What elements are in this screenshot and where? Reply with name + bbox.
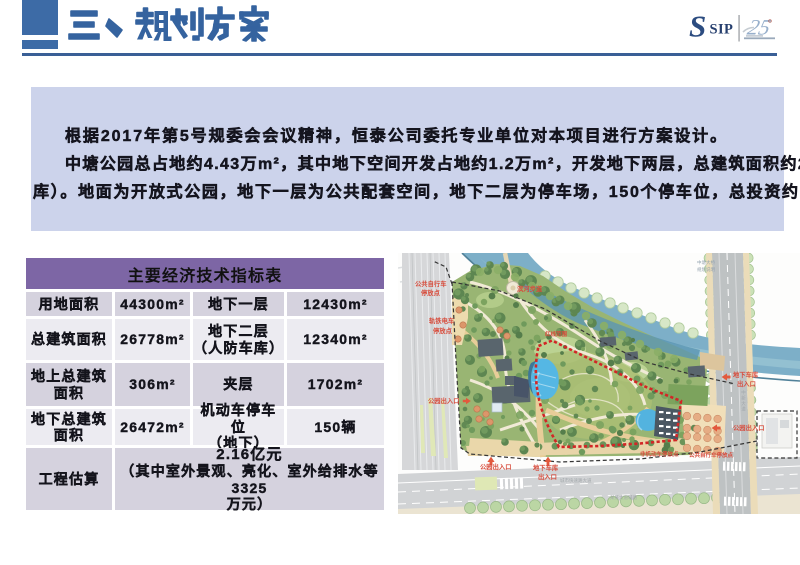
svg-text:S: S <box>689 9 706 44</box>
svg-text:SIP: SIP <box>710 22 734 38</box>
